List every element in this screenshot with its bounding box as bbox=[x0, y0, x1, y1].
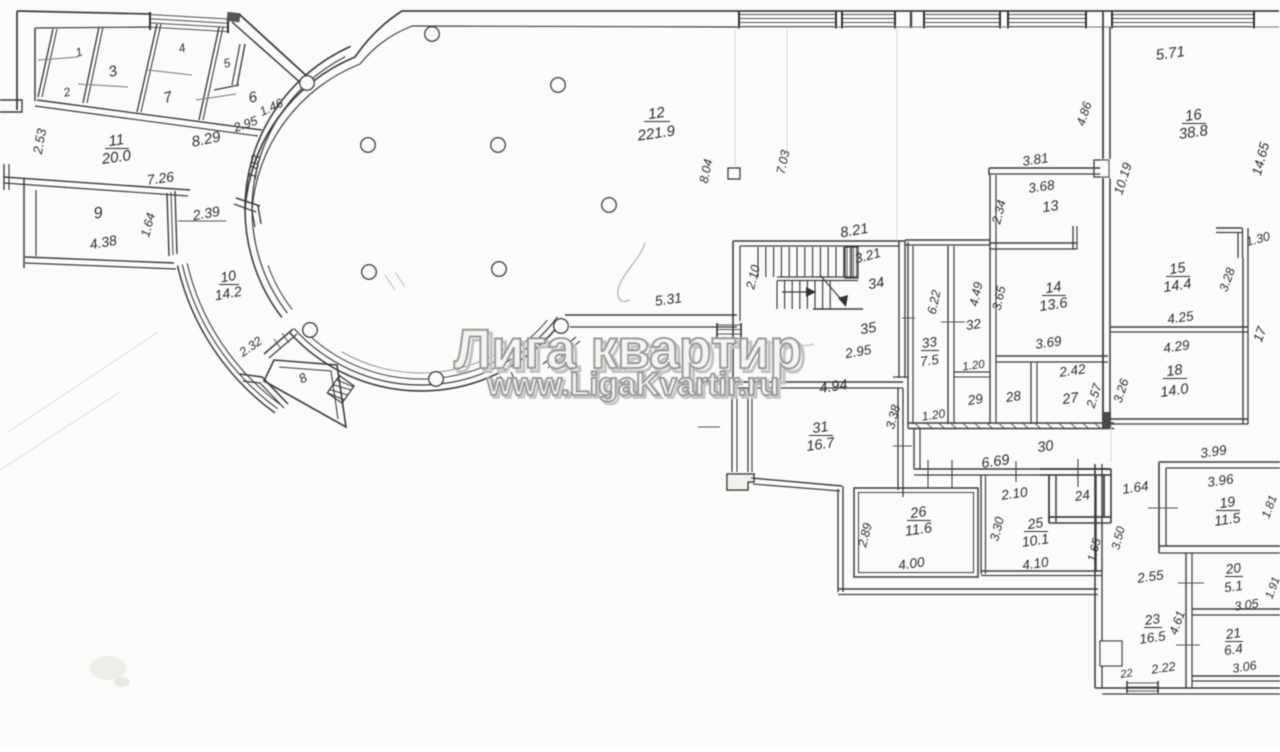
svg-text:24: 24 bbox=[1073, 487, 1091, 504]
svg-text:29: 29 bbox=[966, 391, 984, 408]
svg-text:13: 13 bbox=[1041, 198, 1059, 216]
svg-text:14: 14 bbox=[1044, 279, 1062, 297]
svg-text:33: 33 bbox=[921, 334, 938, 351]
svg-text:10: 10 bbox=[219, 267, 237, 285]
svg-text:23: 23 bbox=[1143, 611, 1161, 628]
svg-text:26: 26 bbox=[908, 504, 928, 522]
svg-text:28: 28 bbox=[1004, 388, 1022, 405]
svg-text:15: 15 bbox=[1168, 260, 1187, 278]
svg-text:www.LigaKvartir.ru: www.LigaKvartir.ru bbox=[486, 366, 779, 402]
svg-text:34: 34 bbox=[867, 275, 886, 294]
svg-text:31: 31 bbox=[811, 419, 829, 437]
svg-text:32: 32 bbox=[965, 316, 982, 333]
svg-text:19: 19 bbox=[1218, 493, 1236, 511]
svg-text:12: 12 bbox=[647, 104, 667, 123]
svg-text:27: 27 bbox=[1060, 390, 1080, 408]
svg-text:6.4: 6.4 bbox=[1223, 641, 1244, 658]
svg-text:25: 25 bbox=[1025, 514, 1044, 532]
svg-text:20: 20 bbox=[1224, 560, 1242, 577]
svg-text:22: 22 bbox=[1119, 667, 1134, 681]
svg-text:18: 18 bbox=[1165, 362, 1183, 380]
svg-text:21: 21 bbox=[1224, 625, 1242, 642]
svg-text:5.1: 5.1 bbox=[1223, 578, 1244, 595]
svg-text:30: 30 bbox=[1036, 438, 1054, 456]
svg-text:7.5: 7.5 bbox=[919, 352, 940, 370]
